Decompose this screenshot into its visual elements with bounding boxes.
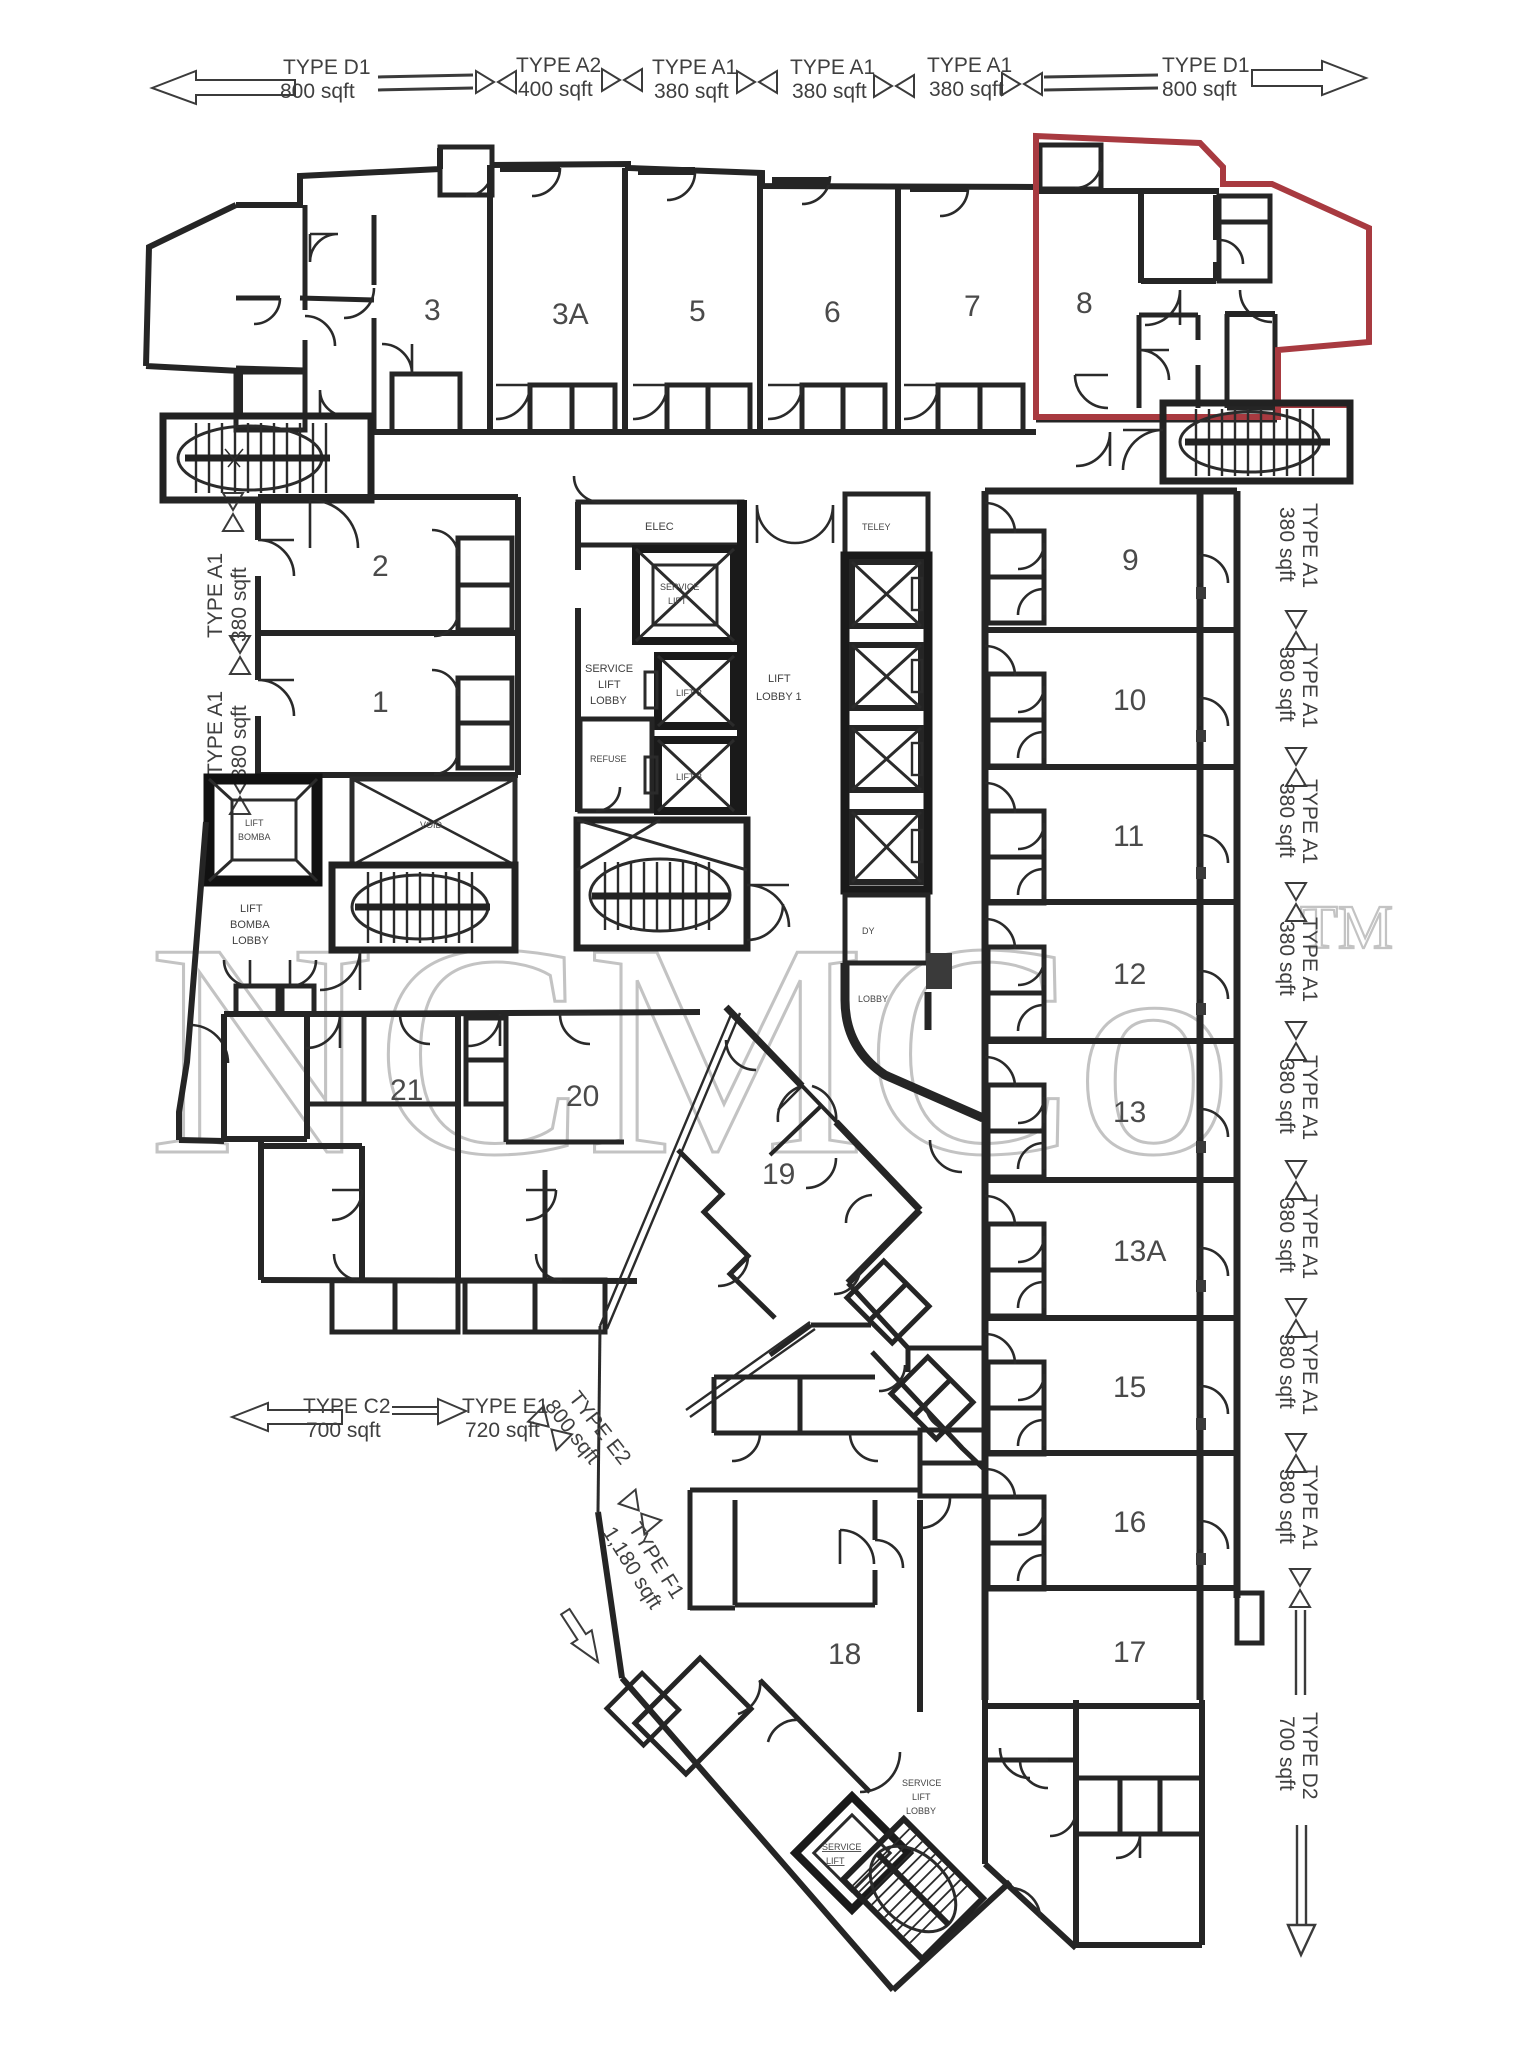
svg-text:TYPE A1: TYPE A1 xyxy=(1298,1465,1321,1550)
svg-text:TYPE A1: TYPE A1 xyxy=(1298,1055,1321,1140)
svg-text:LOBBY: LOBBY xyxy=(590,695,627,707)
svg-text:380 sqft: 380 sqft xyxy=(228,567,251,642)
svg-text:TYPE D2: TYPE D2 xyxy=(1298,1712,1321,1800)
svg-text:13: 13 xyxy=(1113,1096,1146,1129)
svg-text:VOID: VOID xyxy=(420,820,443,830)
svg-text:TYPE D1: TYPE D1 xyxy=(283,56,371,79)
svg-text:380 sqft: 380 sqft xyxy=(1275,1198,1298,1273)
svg-text:8: 8 xyxy=(1076,287,1093,320)
svg-text:13A: 13A xyxy=(1113,1235,1166,1268)
svg-text:380 sqft: 380 sqft xyxy=(1275,1469,1298,1544)
svg-text:SERVICE: SERVICE xyxy=(822,1842,861,1852)
svg-text:5: 5 xyxy=(689,295,706,328)
svg-text:LOBBY: LOBBY xyxy=(858,994,888,1004)
svg-text:7: 7 xyxy=(964,290,981,323)
svg-text:17: 17 xyxy=(1113,1636,1146,1669)
svg-text:LIFT: LIFT xyxy=(245,818,264,828)
svg-text:TYPE A1: TYPE A1 xyxy=(652,56,737,79)
svg-text:18: 18 xyxy=(828,1638,861,1671)
svg-text:380 sqft: 380 sqft xyxy=(1275,1334,1298,1409)
svg-text:LIFT 3: LIFT 3 xyxy=(676,688,702,698)
svg-text:DY: DY xyxy=(862,926,875,936)
svg-text:LIFT: LIFT xyxy=(768,673,791,685)
svg-text:TYPE A1: TYPE A1 xyxy=(1298,503,1321,588)
svg-text:380 sqft: 380 sqft xyxy=(1275,783,1298,858)
svg-text:TYPE A1: TYPE A1 xyxy=(927,54,1012,77)
svg-text:800 sqft: 800 sqft xyxy=(280,80,355,103)
svg-text:16: 16 xyxy=(1113,1506,1146,1539)
svg-text:10: 10 xyxy=(1113,684,1146,717)
svg-text:TYPE A1: TYPE A1 xyxy=(1298,1330,1321,1415)
svg-text:TYPE A2: TYPE A2 xyxy=(516,54,601,77)
svg-text:TYPE A1: TYPE A1 xyxy=(204,691,227,776)
svg-text:19: 19 xyxy=(762,1158,795,1191)
svg-text:LIFT 8: LIFT 8 xyxy=(676,772,702,782)
svg-text:700 sqft: 700 sqft xyxy=(306,1419,381,1442)
svg-text:3: 3 xyxy=(424,294,441,327)
svg-text:20: 20 xyxy=(566,1080,599,1113)
svg-text:380 sqft: 380 sqft xyxy=(1275,1059,1298,1134)
svg-text:380 sqft: 380 sqft xyxy=(228,705,251,780)
svg-text:LIFT: LIFT xyxy=(912,1792,931,1802)
svg-text:TYPE A1: TYPE A1 xyxy=(1298,1194,1321,1279)
svg-text:3A: 3A xyxy=(552,298,589,331)
svg-text:380 sqft: 380 sqft xyxy=(1275,647,1298,722)
svg-text:380 sqft: 380 sqft xyxy=(792,80,867,103)
svg-text:TYPE C2: TYPE C2 xyxy=(303,1395,391,1418)
svg-text:LOBBY 1: LOBBY 1 xyxy=(756,691,802,703)
svg-text:BOMBA: BOMBA xyxy=(238,832,271,842)
svg-text:TYPE A1: TYPE A1 xyxy=(1298,779,1321,864)
svg-text:TELEY: TELEY xyxy=(862,522,891,532)
svg-text:BOMBA: BOMBA xyxy=(230,919,270,931)
svg-text:SERVICE: SERVICE xyxy=(585,663,633,675)
svg-text:TYPE A1: TYPE A1 xyxy=(790,56,875,79)
svg-text:TYPE D1: TYPE D1 xyxy=(1162,54,1250,77)
svg-text:SERVICE: SERVICE xyxy=(902,1778,941,1788)
svg-text:11: 11 xyxy=(1113,820,1144,853)
svg-text:2: 2 xyxy=(372,550,389,583)
svg-text:ELEC: ELEC xyxy=(645,521,674,533)
svg-text:TYPE A1: TYPE A1 xyxy=(204,553,227,638)
svg-text:REFUSE: REFUSE xyxy=(590,754,627,764)
svg-text:SERVICE: SERVICE xyxy=(660,582,699,592)
svg-text:700 sqft: 700 sqft xyxy=(1275,1716,1298,1791)
svg-text:1: 1 xyxy=(372,686,389,719)
svg-text:380 sqft: 380 sqft xyxy=(1275,921,1298,996)
svg-text:21: 21 xyxy=(390,1074,423,1107)
svg-text:380 sqft: 380 sqft xyxy=(929,78,1004,101)
svg-text:LIFT: LIFT xyxy=(826,1856,845,1866)
svg-text:800 sqft: 800 sqft xyxy=(1162,78,1237,101)
svg-text:380 sqft: 380 sqft xyxy=(654,80,729,103)
svg-text:LOBBY: LOBBY xyxy=(232,935,269,947)
svg-text:6: 6 xyxy=(824,296,841,329)
svg-text:LIFT: LIFT xyxy=(240,903,263,915)
svg-text:12: 12 xyxy=(1113,958,1146,991)
svg-text:LIFT: LIFT xyxy=(668,596,687,606)
svg-text:9: 9 xyxy=(1122,544,1139,577)
svg-text:15: 15 xyxy=(1113,1371,1146,1404)
svg-text:TYPE A1: TYPE A1 xyxy=(1298,917,1321,1002)
svg-text:TYPE A1: TYPE A1 xyxy=(1298,643,1321,728)
svg-text:400 sqft: 400 sqft xyxy=(518,78,593,101)
svg-text:380 sqft: 380 sqft xyxy=(1275,507,1298,582)
svg-text:LOBBY: LOBBY xyxy=(906,1806,936,1816)
svg-text:LIFT: LIFT xyxy=(598,679,621,691)
